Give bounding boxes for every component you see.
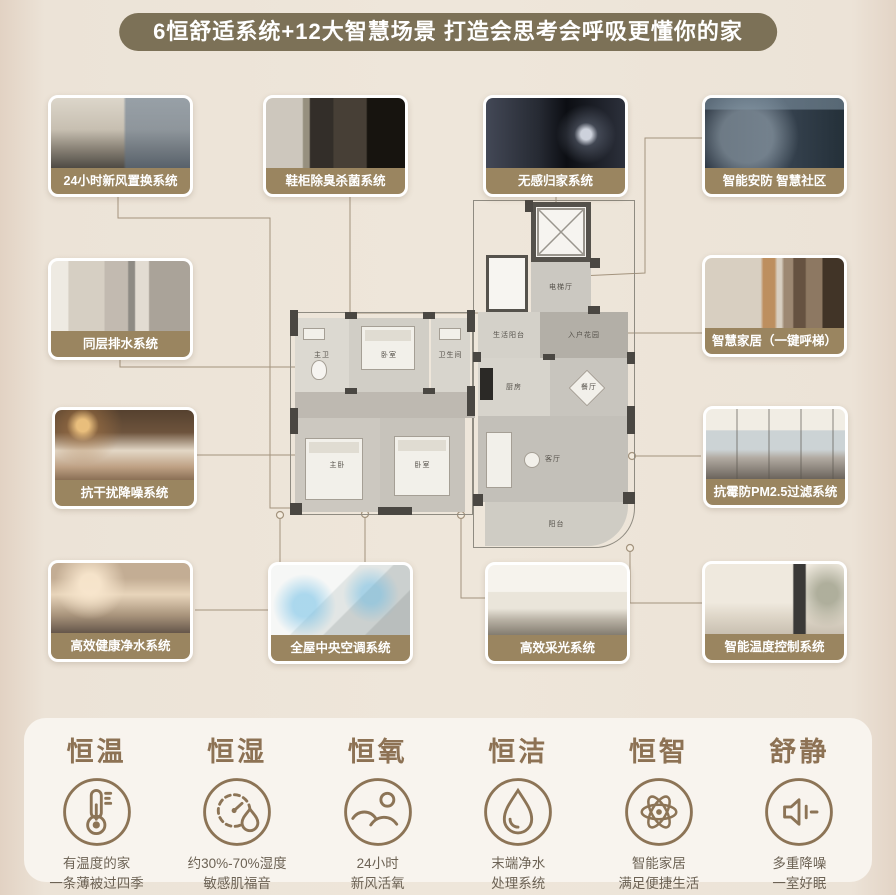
water-purification-photo [51, 563, 190, 633]
system-card-homecoming: 无感归家系统 [483, 95, 628, 197]
wall-segment [590, 258, 600, 268]
wall-segment [473, 352, 481, 362]
system-card-label: 智慧家居（一键呼梯） [705, 328, 844, 354]
feature-desc-line: 一条薄被过四季 [49, 876, 144, 891]
feature-constant-intelligence: 恒智 智能家居 满足便捷生活 [591, 730, 727, 882]
daylighting-photo [488, 565, 627, 635]
room-bathroom: 卫生间 [431, 318, 470, 392]
room-label: 入户花园 [540, 330, 628, 340]
bed-graphic [361, 326, 415, 370]
feature-desc-line: 敏感肌福音 [203, 876, 271, 891]
feature-desc: 约30%-70%湿度 敏感肌福音 [169, 854, 305, 893]
feature-title: 恒氧 [310, 730, 446, 769]
feature-desc: 智能家居 满足便捷生活 [591, 854, 727, 893]
room-master-bath: 主卫 [295, 318, 349, 392]
feature-desc-line: 末端净水 [491, 856, 545, 871]
system-card-central-ac: 全屋中央空调系统 [268, 562, 413, 664]
six-constant-panel: 恒温 有温度的家 一条薄被过四季 恒湿 [24, 718, 872, 882]
feature-title: 恒智 [591, 730, 727, 769]
system-card-label: 智能安防 智慧社区 [705, 168, 844, 194]
room-living: 客厅 [478, 416, 628, 502]
system-card-fresh-air: 24小时新风置换系统 [48, 95, 193, 197]
wall-segment [627, 406, 635, 434]
system-card-security: 智能安防 智慧社区 [702, 95, 847, 197]
room-label: 主卧 [295, 460, 380, 470]
storage-room [486, 255, 528, 312]
system-card-temperature-control: 智能温度控制系统 [702, 561, 847, 663]
system-card-label: 鞋柜除臭杀菌系统 [266, 168, 405, 194]
wall-segment [290, 503, 302, 515]
wall-segment [525, 200, 533, 212]
humidity-gauge-icon [201, 776, 273, 848]
system-card-drainage: 同层排水系统 [48, 258, 193, 360]
system-card-smart-home: 智慧家居（一键呼梯） [702, 255, 847, 357]
wall-segment [588, 306, 600, 314]
wall-segment [473, 494, 483, 506]
wall-segment [423, 388, 435, 394]
system-card-label: 全屋中央空调系统 [271, 635, 410, 661]
central-ac-photo [271, 565, 410, 635]
temperature-control-photo [705, 564, 844, 634]
basin-graphic [303, 328, 325, 340]
system-card-label: 智能温度控制系统 [705, 634, 844, 660]
basin-graphic [439, 328, 461, 340]
room-label: 生活阳台 [478, 330, 540, 340]
feature-title: 恒湿 [169, 730, 305, 769]
room-balcony: 阳台 [485, 502, 628, 546]
system-card-label: 高效采光系统 [488, 635, 627, 661]
system-card-label: 24小时新风置换系统 [51, 168, 190, 194]
system-card-noise-reduction: 抗干扰降噪系统 [52, 407, 197, 509]
shoe-cabinet-photo [266, 98, 405, 168]
system-card-label: 无感归家系统 [486, 168, 625, 194]
feature-quiet-comfort: 舒静 多重降噪 一室好眠 [731, 730, 867, 882]
noise-reduction-photo [55, 410, 194, 480]
system-card-daylighting: 高效采光系统 [485, 562, 630, 664]
feature-title: 恒洁 [450, 730, 586, 769]
feature-title: 恒温 [29, 730, 165, 769]
room-label: 卧室 [380, 460, 465, 470]
room-kitchen: 厨房 [478, 358, 550, 416]
feature-constant-temperature: 恒温 有温度的家 一条薄被过四季 [29, 730, 165, 882]
system-card-label: 同层排水系统 [51, 331, 190, 357]
room-bedroom-2: 卧室 [380, 418, 465, 512]
corridor [295, 392, 475, 418]
wall-segment [290, 408, 298, 434]
water-drop-icon [482, 776, 554, 848]
wall-segment [467, 386, 475, 416]
floor-plan: 电梯厅 入户花园 生活阳台 厨房 餐厅 客厅 阳台 主卧 卧 [290, 200, 635, 548]
wall-segment [290, 310, 298, 336]
wall-segment [623, 492, 635, 504]
system-card-label: 抗干扰降噪系统 [55, 480, 194, 506]
feature-desc-line: 新风活氧 [351, 876, 405, 891]
wall-segment [467, 310, 475, 332]
wall-segment [543, 354, 555, 360]
feature-desc-line: 满足便捷生活 [618, 876, 699, 891]
room-label: 阳台 [485, 519, 628, 529]
feature-constant-clean: 恒洁 末端净水 处理系统 [450, 730, 586, 882]
security-photo [705, 98, 844, 168]
toilet-graphic [311, 360, 327, 380]
feature-desc: 末端净水 处理系统 [450, 854, 586, 893]
room-label: 主卫 [295, 350, 349, 360]
room-label: 餐厅 [550, 382, 628, 392]
fresh-air-photo [51, 98, 190, 168]
feature-desc-line: 有温度的家 [63, 856, 131, 871]
smart-home-photo [705, 258, 844, 328]
feature-desc-line: 24小时 [357, 856, 399, 871]
feature-desc-line: 处理系统 [491, 876, 545, 891]
system-card-label: 高效健康净水系统 [51, 633, 190, 659]
room-elevator-hall: 电梯厅 [531, 262, 591, 312]
feature-desc: 多重降噪 一室好眠 [731, 854, 867, 893]
thermometer-icon [61, 776, 133, 848]
wall-segment [423, 312, 435, 319]
system-card-pm25-filter: 抗霉防PM2.5过滤系统 [703, 406, 848, 508]
elevator-shaft [531, 202, 591, 262]
quiet-speaker-icon [763, 776, 835, 848]
feature-desc-line: 一室好眠 [772, 876, 826, 891]
fresh-air-landscape-icon [342, 776, 414, 848]
room-label: 卫生间 [431, 350, 470, 360]
room-bedroom-3: 卧室 [349, 318, 429, 392]
room-service-balcony: 生活阳台 [478, 312, 540, 358]
room-entry-garden: 入户花园 [540, 312, 628, 358]
feature-desc-line: 多重降噪 [772, 856, 826, 871]
room-label: 厨房 [478, 382, 550, 392]
wall-segment [378, 507, 412, 515]
wall-segment [345, 312, 357, 319]
room-label: 卧室 [349, 350, 429, 360]
feature-constant-oxygen: 恒氧 24小时 新风活氧 [310, 730, 446, 882]
system-card-shoe-cabinet: 鞋柜除臭杀菌系统 [263, 95, 408, 197]
pm25-filter-photo [706, 409, 845, 479]
system-card-label: 抗霉防PM2.5过滤系统 [706, 479, 845, 505]
wall-segment [345, 388, 357, 394]
feature-desc: 有温度的家 一条薄被过四季 [29, 854, 165, 893]
smart-atom-icon [623, 776, 695, 848]
feature-title: 舒静 [731, 730, 867, 769]
room-label: 电梯厅 [531, 282, 591, 292]
poster: 6恒舒适系统+12大智慧场景 打造会思考会呼吸更懂你的家 24小时新风置换系统 … [0, 0, 896, 895]
room-master-bedroom: 主卧 [295, 418, 380, 512]
system-card-water-purification: 高效健康净水系统 [48, 560, 193, 662]
feature-constant-humidity: 恒湿 约30%-70%湿度 敏感肌福音 [169, 730, 305, 882]
room-dining: 餐厅 [550, 358, 628, 416]
wall-segment [627, 352, 635, 364]
banner-title: 6恒舒适系统+12大智慧场景 打造会思考会呼吸更懂你的家 [119, 13, 777, 51]
feature-desc-line: 智能家居 [632, 856, 686, 871]
room-label: 客厅 [478, 454, 628, 464]
feature-desc-line: 约30%-70%湿度 [188, 856, 287, 871]
drainage-photo [51, 261, 190, 331]
feature-desc: 24小时 新风活氧 [310, 854, 446, 893]
homecoming-photo [486, 98, 625, 168]
